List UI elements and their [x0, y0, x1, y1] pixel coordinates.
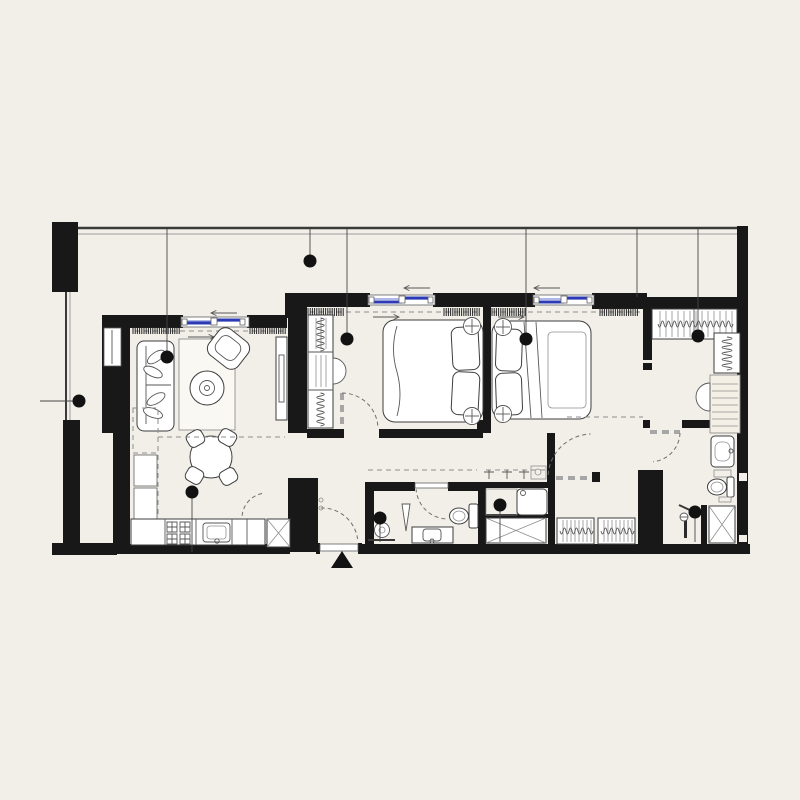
- leader-dot-kitchen: [186, 486, 199, 499]
- master-window-stop-2: [561, 296, 567, 303]
- master-window-stop-1: [534, 297, 539, 303]
- bath2-grab-rail: [684, 519, 687, 538]
- floor-plan: [0, 0, 800, 800]
- bath1-toilet-tank: [469, 504, 478, 528]
- wall-corner-block: [477, 420, 491, 433]
- wall-entry-jamb-right: [358, 543, 362, 554]
- bath2-toilet-tank: [727, 477, 734, 497]
- wall-entry-shaft: [288, 478, 318, 552]
- wall-west-lower: [63, 420, 80, 545]
- leader-dot-bedroom1: [341, 333, 354, 346]
- wall-column-topleft: [52, 222, 78, 292]
- wall-master-door-jamb: [592, 472, 600, 482]
- coffee-table: [190, 371, 224, 405]
- wall-living-top-east: [247, 315, 287, 328]
- kitchen-tall-unit-2: [134, 488, 157, 519]
- wall-bedroom1-bottom-east: [379, 429, 483, 438]
- west-window-niche: [104, 328, 121, 366]
- wall-master-top-west: [490, 293, 535, 307]
- wall-bath1-left: [365, 482, 374, 544]
- wall-utility-top: [483, 482, 548, 488]
- wall-bath2-shower-divider: [701, 505, 707, 544]
- wall-living-top-west: [102, 315, 183, 328]
- kitchen-tall-unit-1: [134, 455, 157, 486]
- bedroom1-window-stop-1: [369, 297, 374, 303]
- wall-master-dressing-stub: [643, 309, 652, 360]
- wall-bath1-utility: [478, 482, 486, 544]
- leader-dot-dressing: [692, 330, 705, 343]
- bath1-toilet-bowl: [450, 508, 469, 524]
- bath2-sink: [711, 436, 734, 467]
- wall-dressing-top: [643, 297, 740, 309]
- leader-dot-master: [520, 333, 533, 346]
- wall-bath1-top-east: [448, 482, 478, 491]
- wall-shaft: [638, 470, 663, 544]
- wall-bedroom1-bottom-west: [307, 429, 344, 438]
- leader-dot-bath1: [374, 512, 387, 525]
- leader-dot-utility: [494, 499, 507, 512]
- wall-kitchen-west: [113, 433, 130, 544]
- wall-bedroom1-top-west: [290, 293, 370, 307]
- wall-utility-right: [548, 482, 555, 544]
- leader-dot-bath2: [689, 506, 702, 519]
- entry-door-leaf: [320, 544, 358, 551]
- living-window-stop-2: [211, 318, 217, 325]
- bedroom1-window-stop-3: [428, 297, 433, 303]
- bath1-basin: [375, 523, 390, 538]
- tv-console: [276, 337, 287, 420]
- floor-plan-canvas: [0, 0, 800, 800]
- wall-bottom-left-stub: [52, 543, 117, 555]
- utility-washer: [517, 489, 547, 515]
- bath1-door-leaf: [415, 483, 448, 488]
- living-window-stop-3: [240, 319, 245, 325]
- wall-entry-jamb-left: [316, 543, 320, 554]
- leader-dot-west: [73, 395, 86, 408]
- wall-living-bedroom1-divider: [288, 318, 307, 433]
- kitchen-counter: [131, 519, 265, 545]
- wall-bedroom-divider: [483, 305, 491, 433]
- right-wall-notch-lower: [739, 535, 747, 542]
- master-window-stop-3: [587, 297, 592, 303]
- leader-dot-balcony: [304, 255, 317, 268]
- wall-master-dressing-block: [643, 363, 652, 370]
- wall-bedroom1-top-east: [433, 293, 491, 307]
- bedroom1-window-stop-2: [399, 296, 405, 303]
- wall-bottom-right: [358, 544, 750, 554]
- living-window-stop-1: [182, 319, 187, 325]
- leader-dot-sofa: [161, 351, 174, 364]
- wall-bath2-top-west: [643, 420, 650, 428]
- bath2-toilet-bowl: [708, 479, 727, 495]
- right-wall-notch-upper: [739, 473, 747, 481]
